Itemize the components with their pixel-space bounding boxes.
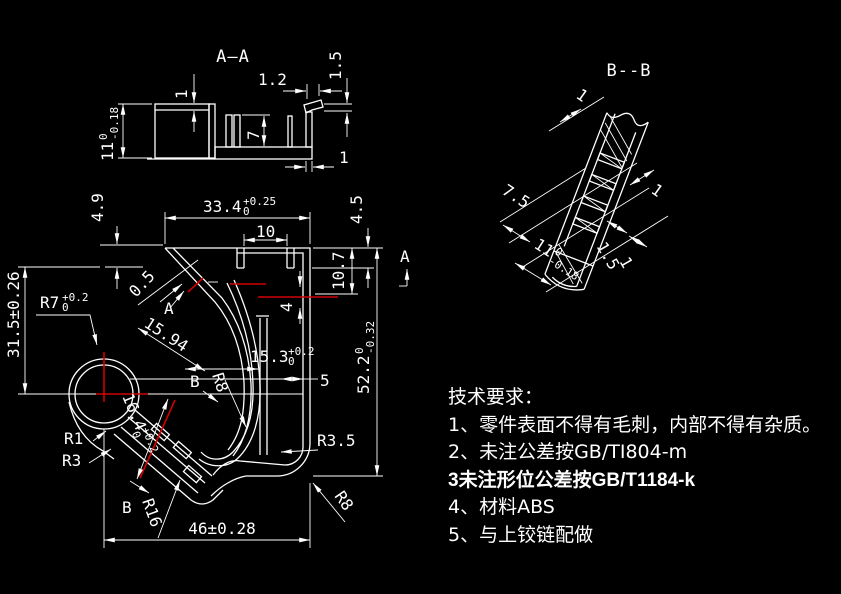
dim-10-7: 10.7 <box>329 251 348 290</box>
dim-bb-top-1: 1 <box>573 85 592 106</box>
dim-52-2: 52.2 0 -0.32 <box>353 321 377 394</box>
tech-note-2: 2、未注公差按GB/TI804-m <box>448 439 821 467</box>
cad-drawing-canvas[interactable]: A—A 1 11 0 -0.18 <box>0 0 841 594</box>
section-marker-b-bottom: B <box>122 498 132 517</box>
dim-0-5: 0.5 <box>125 267 159 301</box>
svg-text:33.4: 33.4 <box>203 197 242 216</box>
tech-note-5: 5、与上铰链配做 <box>448 522 821 550</box>
dim-bb-side-1: 1 <box>648 180 667 201</box>
dim-10: 10 <box>256 222 275 241</box>
dim-rib-7: 7 <box>244 130 263 140</box>
svg-text:0: 0 <box>62 301 69 314</box>
section-aa-title: A—A <box>216 47 250 67</box>
dim-1-5: 1.5 <box>326 51 345 80</box>
dim-base-1: 1 <box>339 148 349 167</box>
dim-height-aa: 11 0 -0.18 <box>97 107 121 161</box>
dim-r1: R1 <box>64 429 83 448</box>
svg-text:52.2: 52.2 <box>354 355 373 394</box>
dim-4: 4 <box>277 302 296 312</box>
tech-notes-title: 技术要求： <box>448 384 821 412</box>
section-aa-dimensions: 1 11 0 -0.18 1.2 1.5 7 1 <box>97 51 352 172</box>
section-marker-a-cut: A <box>164 299 174 318</box>
svg-text:-0.32: -0.32 <box>364 321 377 354</box>
main-view-dimensions: 33.4 +0.25 0 10 4.9 31.5±0.26 R7 +0.2 0 … <box>4 193 410 548</box>
section-bb-view: B--B 1 7.5 11 0 <box>499 61 668 295</box>
svg-text:0: 0 <box>129 429 144 440</box>
dim-bb-7-5: 7.5 <box>499 180 534 212</box>
dim-r16: R16 <box>138 496 166 530</box>
dim-5: 5 <box>320 371 330 390</box>
dim-31-5: 31.5±0.26 <box>4 271 23 358</box>
dim-r7: R7 +0.2 0 <box>40 291 89 314</box>
dim-1-2: 1.2 <box>258 70 287 89</box>
svg-text:15.3: 15.3 <box>250 347 289 366</box>
tech-note-4: 4、材料ABS <box>448 494 821 522</box>
tech-note-3: 3未注形位公差按GB/T1184-k <box>448 467 821 495</box>
section-marker-a-side: A <box>400 247 410 266</box>
section-aa-geometry <box>147 100 323 159</box>
svg-text:-0.18: -0.18 <box>108 107 121 140</box>
svg-text:0: 0 <box>243 205 250 218</box>
svg-text:0: 0 <box>288 355 295 368</box>
dim-r8-hook: R8 <box>208 370 232 394</box>
technical-notes: 技术要求： 1、零件表面不得有毛刺，内部不得有杂质。 2、未注公差按GB/TI8… <box>448 384 821 549</box>
dim-wall-top: 1 <box>172 89 191 99</box>
dim-4-5: 4.5 <box>347 195 366 224</box>
dim-15-3: 15.3 +0.2 0 <box>250 345 315 368</box>
section-bb-title: B--B <box>607 61 652 81</box>
section-marker-b-mid: B <box>190 372 200 391</box>
tech-note-1: 1、零件表面不得有毛刺，内部不得有杂质。 <box>448 412 821 440</box>
section-bb-dimensions: 1 7.5 11 0 -0.18 1.5 1 1 <box>499 85 668 292</box>
section-aa-view: A—A 1 11 0 -0.18 <box>97 47 352 172</box>
dim-33-4: 33.4 +0.25 0 <box>203 195 276 218</box>
main-view: 33.4 +0.25 0 10 4.9 31.5±0.26 R7 +0.2 0 … <box>4 193 410 548</box>
dim-r3-5: R3.5 <box>317 431 356 450</box>
svg-text:-0.18: -0.18 <box>546 254 581 283</box>
dim-46: 46±0.28 <box>188 519 255 538</box>
dim-4-9: 4.9 <box>88 193 107 222</box>
svg-text:R7: R7 <box>40 293 59 312</box>
dim-r3: R3 <box>62 451 81 470</box>
svg-text:11: 11 <box>98 142 117 161</box>
